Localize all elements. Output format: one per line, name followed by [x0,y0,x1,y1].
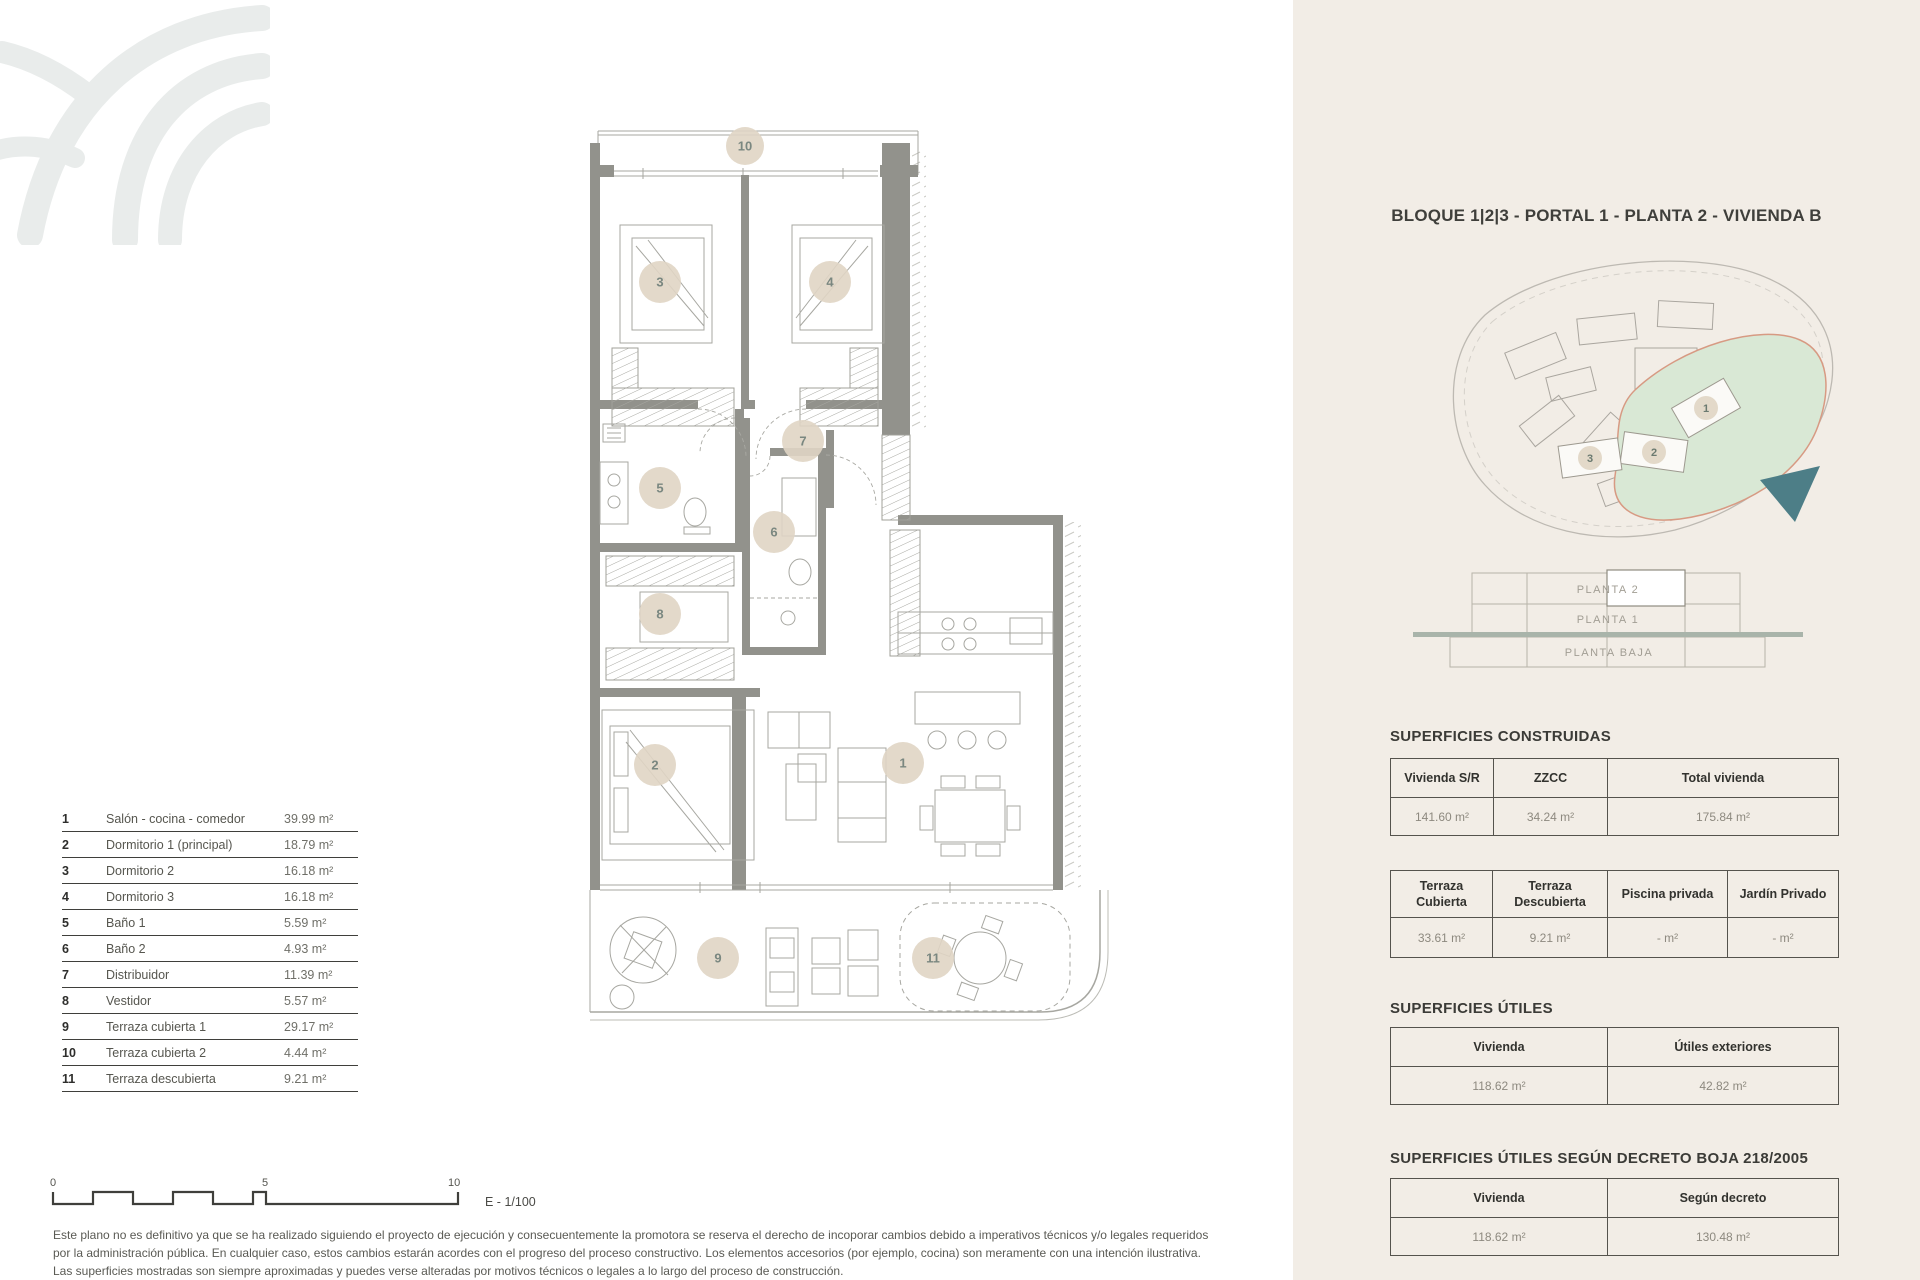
legend-room-area: 9.21 m² [284,1072,358,1086]
legend-row: 6Baño 24.93 m² [62,936,358,962]
svg-text:4: 4 [826,275,834,290]
legend-row: 11Terraza descubierta9.21 m² [62,1066,358,1092]
legend-number: 6 [62,942,106,956]
room-legend: 1Salón - cocina - comedor39.99 m² 2Dormi… [62,806,358,1092]
block-1-label: 1 [1703,403,1709,415]
scale-ratio-label: E - 1/100 [485,1195,536,1209]
table-value-cell: 9.21 m² [1493,918,1608,958]
table-header-cell: Según decreto [1608,1179,1839,1218]
legend-number: 2 [62,838,106,852]
table-header-cell: Terraza Descubierta [1493,871,1608,918]
table-header-cell: Vivienda [1391,1179,1608,1218]
disclaimer-line: por la administración pública. En cualqu… [53,1244,1303,1262]
legend-row: 9Terraza cubierta 129.17 m² [62,1014,358,1040]
legend-room-name: Salón - cocina - comedor [106,812,284,826]
legend-row: 4Dormitorio 316.18 m² [62,884,358,910]
legend-room-name: Baño 1 [106,916,284,930]
legend-number: 7 [62,968,106,982]
svg-text:9: 9 [714,951,721,966]
floor-label-planta-baja: PLANTA BAJA [1565,647,1653,659]
legend-number: 3 [62,864,106,878]
floor-plan: 10 3 4 7 5 6 8 2 1 9 11 [575,85,1145,1090]
legend-number: 4 [62,890,106,904]
legend-row: 3Dormitorio 216.18 m² [62,858,358,884]
table-header-cell: Terraza Cubierta [1391,871,1493,918]
decreto-table: Vivienda Según decreto 118.62 m² 130.48 … [1390,1178,1839,1256]
legend-room-name: Vestidor [106,994,284,1008]
section-heading-decreto: SUPERFICIES ÚTILES SEGÚN DECRETO BOJA 21… [1390,1150,1808,1167]
legend-number: 10 [62,1046,106,1060]
room-badge: 4 [809,261,851,303]
scale-bar: 0 5 10 E - 1/100 [48,1176,608,1216]
legend-row: 10Terraza cubierta 24.44 m² [62,1040,358,1066]
table-value-cell: 130.48 m² [1608,1218,1839,1256]
table-value-cell: - m² [1728,918,1839,958]
block-2-label: 2 [1651,447,1657,459]
legend-number: 11 [62,1072,106,1086]
legend-room-name: Terraza descubierta [106,1072,284,1086]
table-value-cell: 118.62 m² [1391,1067,1608,1105]
table-value-cell: 175.84 m² [1608,798,1839,836]
construidas-table-1: Vivienda S/R ZZCC Total vivienda 141.60 … [1390,758,1839,836]
table-value-cell: 141.60 m² [1391,798,1494,836]
legend-room-area: 16.18 m² [284,864,358,878]
legend-room-area: 39.99 m² [284,812,358,826]
section-heading-construidas: SUPERFICIES CONSTRUIDAS [1390,728,1611,745]
table-value-cell: 42.82 m² [1608,1067,1839,1105]
utiles-table: Vivienda Útiles exteriores 118.62 m² 42.… [1390,1027,1839,1105]
legend-room-area: 29.17 m² [284,1020,358,1034]
legend-number: 9 [62,1020,106,1034]
legend-room-name: Terraza cubierta 1 [106,1020,284,1034]
legend-room-name: Terraza cubierta 2 [106,1046,284,1060]
room-badge: 2 [634,744,676,786]
ground-line [1413,632,1803,637]
scale-tick-0: 0 [50,1177,56,1189]
room-badge: 10 [726,127,764,165]
scale-tick-5: 5 [262,1177,268,1189]
table-value-cell: 34.24 m² [1494,798,1608,836]
svg-text:1: 1 [899,756,906,771]
room-badge: 3 [639,261,681,303]
terraces [590,890,1108,1020]
legend-room-name: Distribuidor [106,968,284,982]
svg-text:7: 7 [799,434,806,449]
unit-title: BLOQUE 1|2|3 - PORTAL 1 - PLANTA 2 - VIV… [1293,206,1920,226]
legend-room-area: 18.79 m² [284,838,358,852]
legend-room-area: 4.93 m² [284,942,358,956]
svg-text:3: 3 [656,275,663,290]
room-badge: 5 [639,467,681,509]
room-badge: 7 [782,420,824,462]
table-value-cell: - m² [1608,918,1728,958]
legend-room-area: 11.39 m² [284,968,358,982]
room-badge: 9 [697,937,739,979]
table-header-cell: Piscina privada [1608,871,1728,918]
legend-number: 5 [62,916,106,930]
table-header-cell: ZZCC [1494,759,1608,798]
legend-room-name: Dormitorio 1 (principal) [106,838,284,852]
disclaimer-line: Este plano no es definitivo ya que se ha… [53,1226,1303,1244]
table-header-cell: Vivienda [1391,1028,1608,1067]
legend-room-name: Baño 2 [106,942,284,956]
svg-text:11: 11 [926,951,940,966]
table-header-cell: Total vivienda [1608,759,1839,798]
svg-text:6: 6 [770,525,777,540]
brand-logo [0,0,270,245]
legend-room-name: Dormitorio 2 [106,864,284,878]
legend-row: 8Vestidor5.57 m² [62,988,358,1014]
floor-level-diagram: PLANTA 2 PLANTA 1 PLANTA BAJA [1410,555,1830,675]
section-heading-utiles: SUPERFICIES ÚTILES [1390,1000,1553,1017]
room-badge: 6 [753,511,795,553]
disclaimer-text: Este plano no es definitivo ya que se ha… [53,1226,1303,1280]
legend-room-area: 16.18 m² [284,890,358,904]
construidas-table-2: Terraza Cubierta Terraza Descubierta Pis… [1390,870,1839,958]
scale-tick-10: 10 [448,1177,460,1189]
site-map: 1 2 3 [1430,230,1850,560]
legend-number: 1 [62,812,106,826]
svg-text:10: 10 [738,139,752,154]
disclaimer-line: Las superficies mostradas son siempre ap… [53,1262,1303,1280]
room-badge: 11 [912,937,954,979]
legend-row: 2Dormitorio 1 (principal)18.79 m² [62,832,358,858]
legend-row: 5Baño 15.59 m² [62,910,358,936]
floor-label-planta-1: PLANTA 1 [1577,614,1640,626]
info-panel: BLOQUE 1|2|3 - PORTAL 1 - PLANTA 2 - VIV… [1293,0,1920,1280]
table-header-cell: Vivienda S/R [1391,759,1494,798]
block-3-label: 3 [1587,453,1593,465]
floor-label-planta-2: PLANTA 2 [1577,584,1640,596]
scale-bar-line [53,1192,458,1204]
legend-number: 8 [62,994,106,1008]
svg-text:5: 5 [656,481,663,496]
svg-text:2: 2 [651,758,658,773]
svg-text:8: 8 [656,607,663,622]
table-header-cell: Jardín Privado [1728,871,1839,918]
table-value-cell: 118.62 m² [1391,1218,1608,1256]
legend-room-area: 5.57 m² [284,994,358,1008]
legend-room-name: Dormitorio 3 [106,890,284,904]
legend-row: 1Salón - cocina - comedor39.99 m² [62,806,358,832]
table-header-cell: Útiles exteriores [1608,1028,1839,1067]
legend-row: 7Distribuidor11.39 m² [62,962,358,988]
legend-room-area: 4.44 m² [284,1046,358,1060]
table-value-cell: 33.61 m² [1391,918,1493,958]
window-line [600,882,1053,893]
legend-room-area: 5.59 m² [284,916,358,930]
room-badge: 1 [882,742,924,784]
room-badge: 8 [639,593,681,635]
